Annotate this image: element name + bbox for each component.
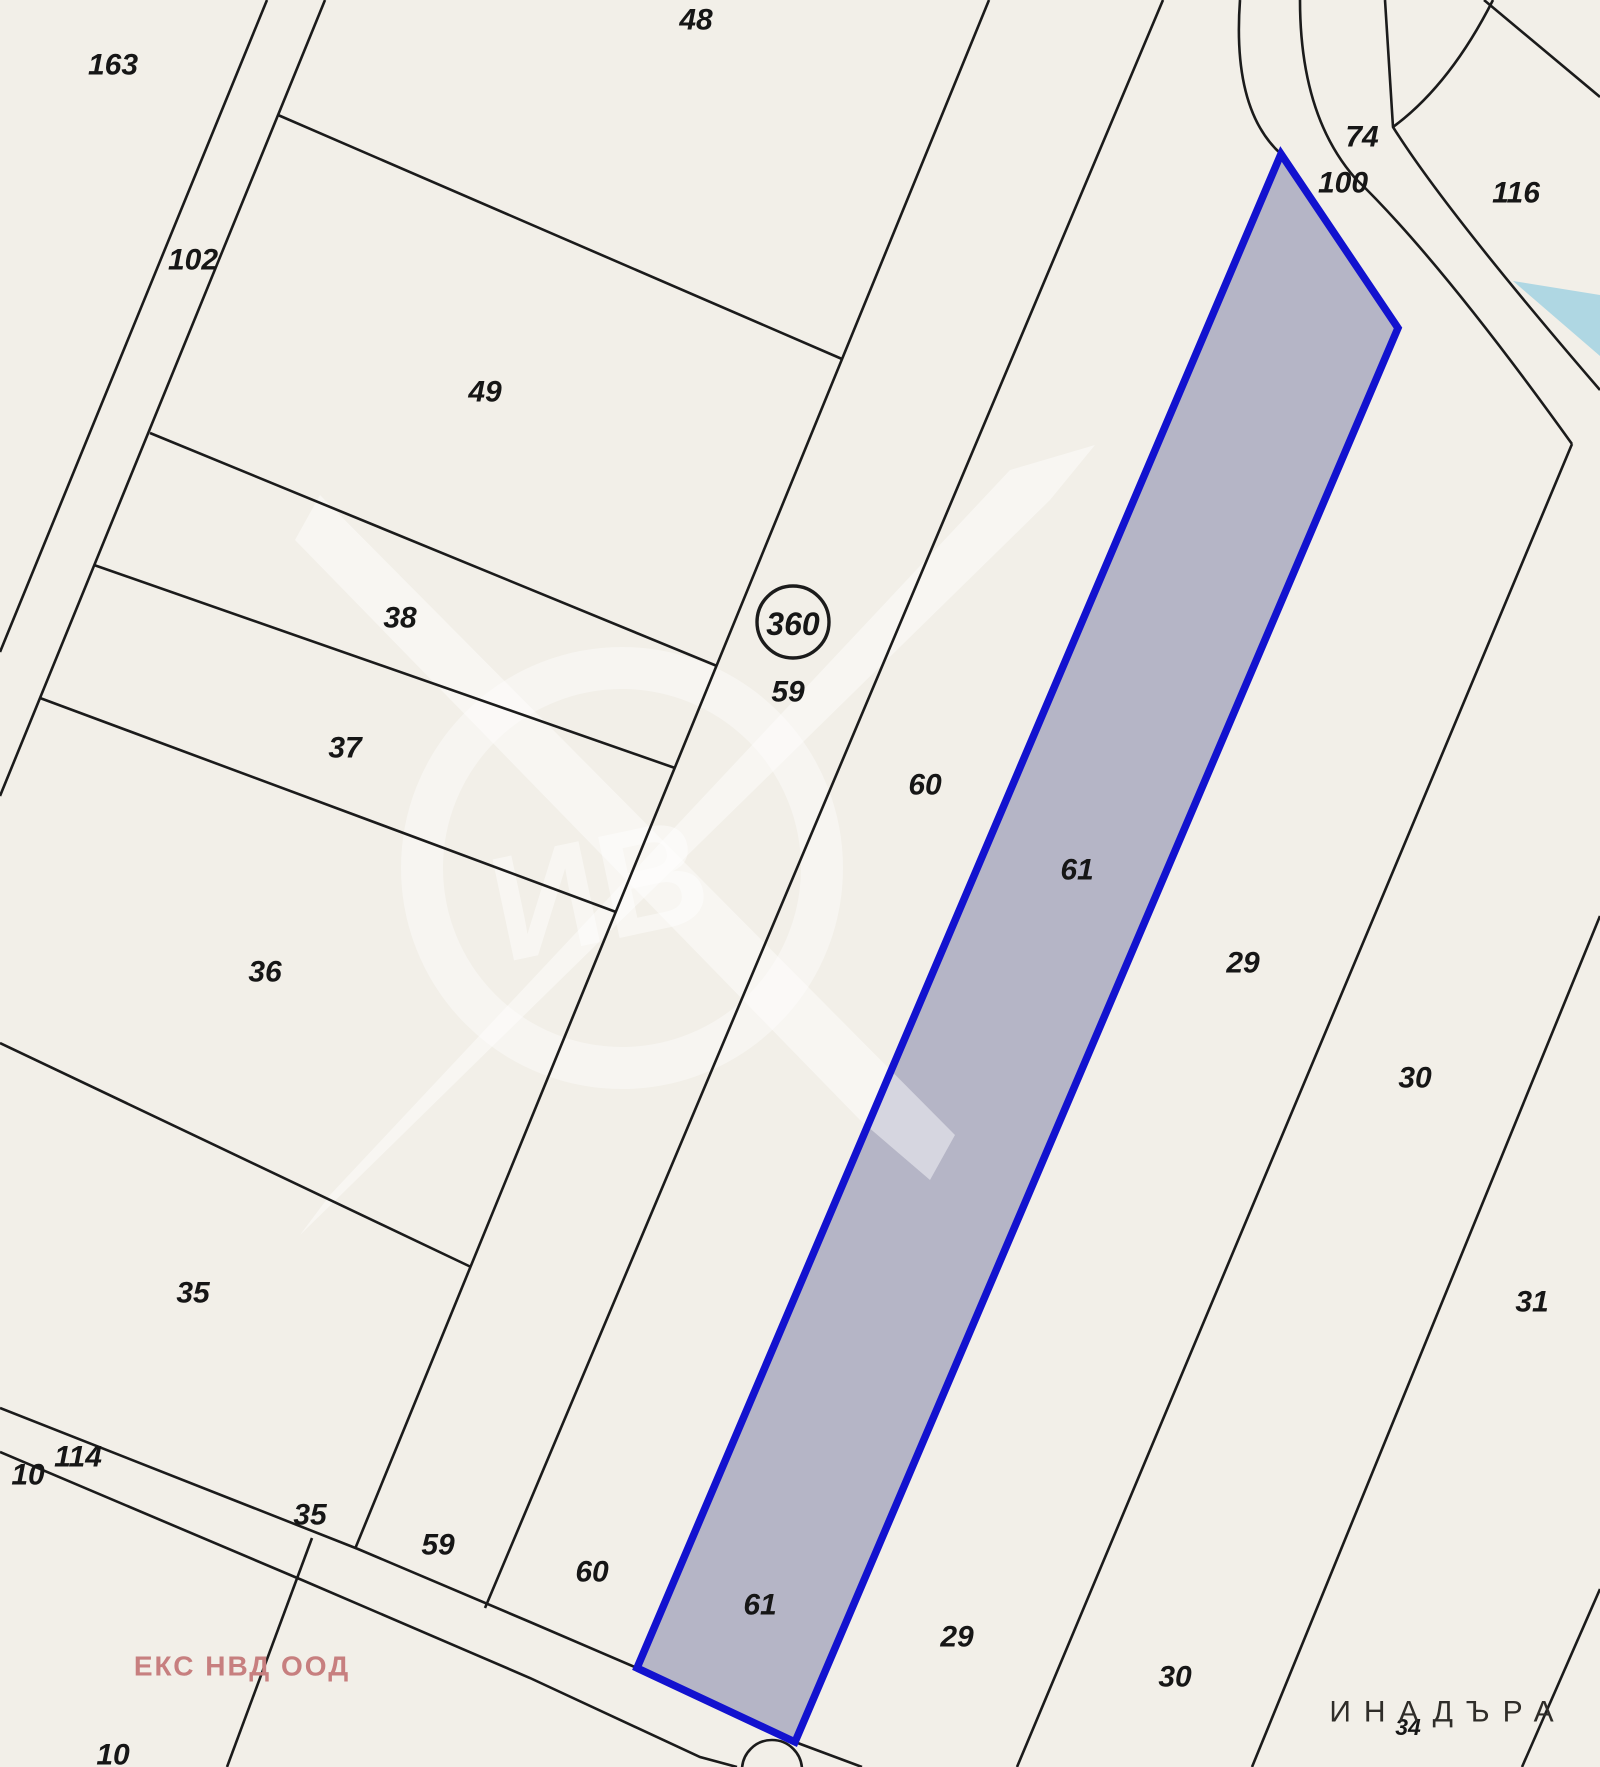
parcel-label-59: 59 <box>771 676 805 709</box>
parcel-label-10: 10 <box>11 1459 45 1492</box>
parcel-label-60: 60 <box>908 769 942 802</box>
parcel-label-35: 35 <box>176 1277 211 1310</box>
parcel-label-102: 102 <box>168 244 218 277</box>
parcel-label-49: 49 <box>467 376 502 409</box>
cadastral-map-viewport[interactable]: ИВ <box>0 0 1600 1767</box>
parcel-label-116: 116 <box>1492 177 1540 210</box>
parcel-label-37: 37 <box>328 732 363 765</box>
parcel-label-61: 61 <box>1060 854 1093 887</box>
parcel-label-48: 48 <box>678 4 713 37</box>
company-watermark-label: ЕКС НВД ООД <box>134 1651 350 1682</box>
parcel-label-10: 10 <box>96 1739 130 1767</box>
parcel-label-29: 29 <box>939 1621 974 1654</box>
parcel-label-35: 35 <box>293 1499 328 1532</box>
parcel-label-163: 163 <box>88 49 138 82</box>
parcel-label-61: 61 <box>743 1589 776 1622</box>
parcel-label-30: 30 <box>1158 1661 1192 1694</box>
cadastral-map-canvas: ИВ <box>0 0 1600 1767</box>
parcel-label-31: 31 <box>1515 1286 1548 1319</box>
parcel-label-100: 100 <box>1318 167 1368 200</box>
parcel-label-74: 74 <box>1345 121 1379 154</box>
parcel-label-36: 36 <box>248 956 282 989</box>
parcel-label-114: 114 <box>54 1441 102 1474</box>
parcel-label-30: 30 <box>1398 1062 1432 1095</box>
parcel-label-29: 29 <box>1225 947 1260 980</box>
region-name-label: ИНАДЪРА <box>1329 1696 1566 1729</box>
parcel-label-59: 59 <box>421 1529 455 1562</box>
junction-badge-label: 360 <box>766 606 820 642</box>
parcel-label-38: 38 <box>383 602 417 635</box>
parcel-label-60: 60 <box>575 1556 609 1589</box>
